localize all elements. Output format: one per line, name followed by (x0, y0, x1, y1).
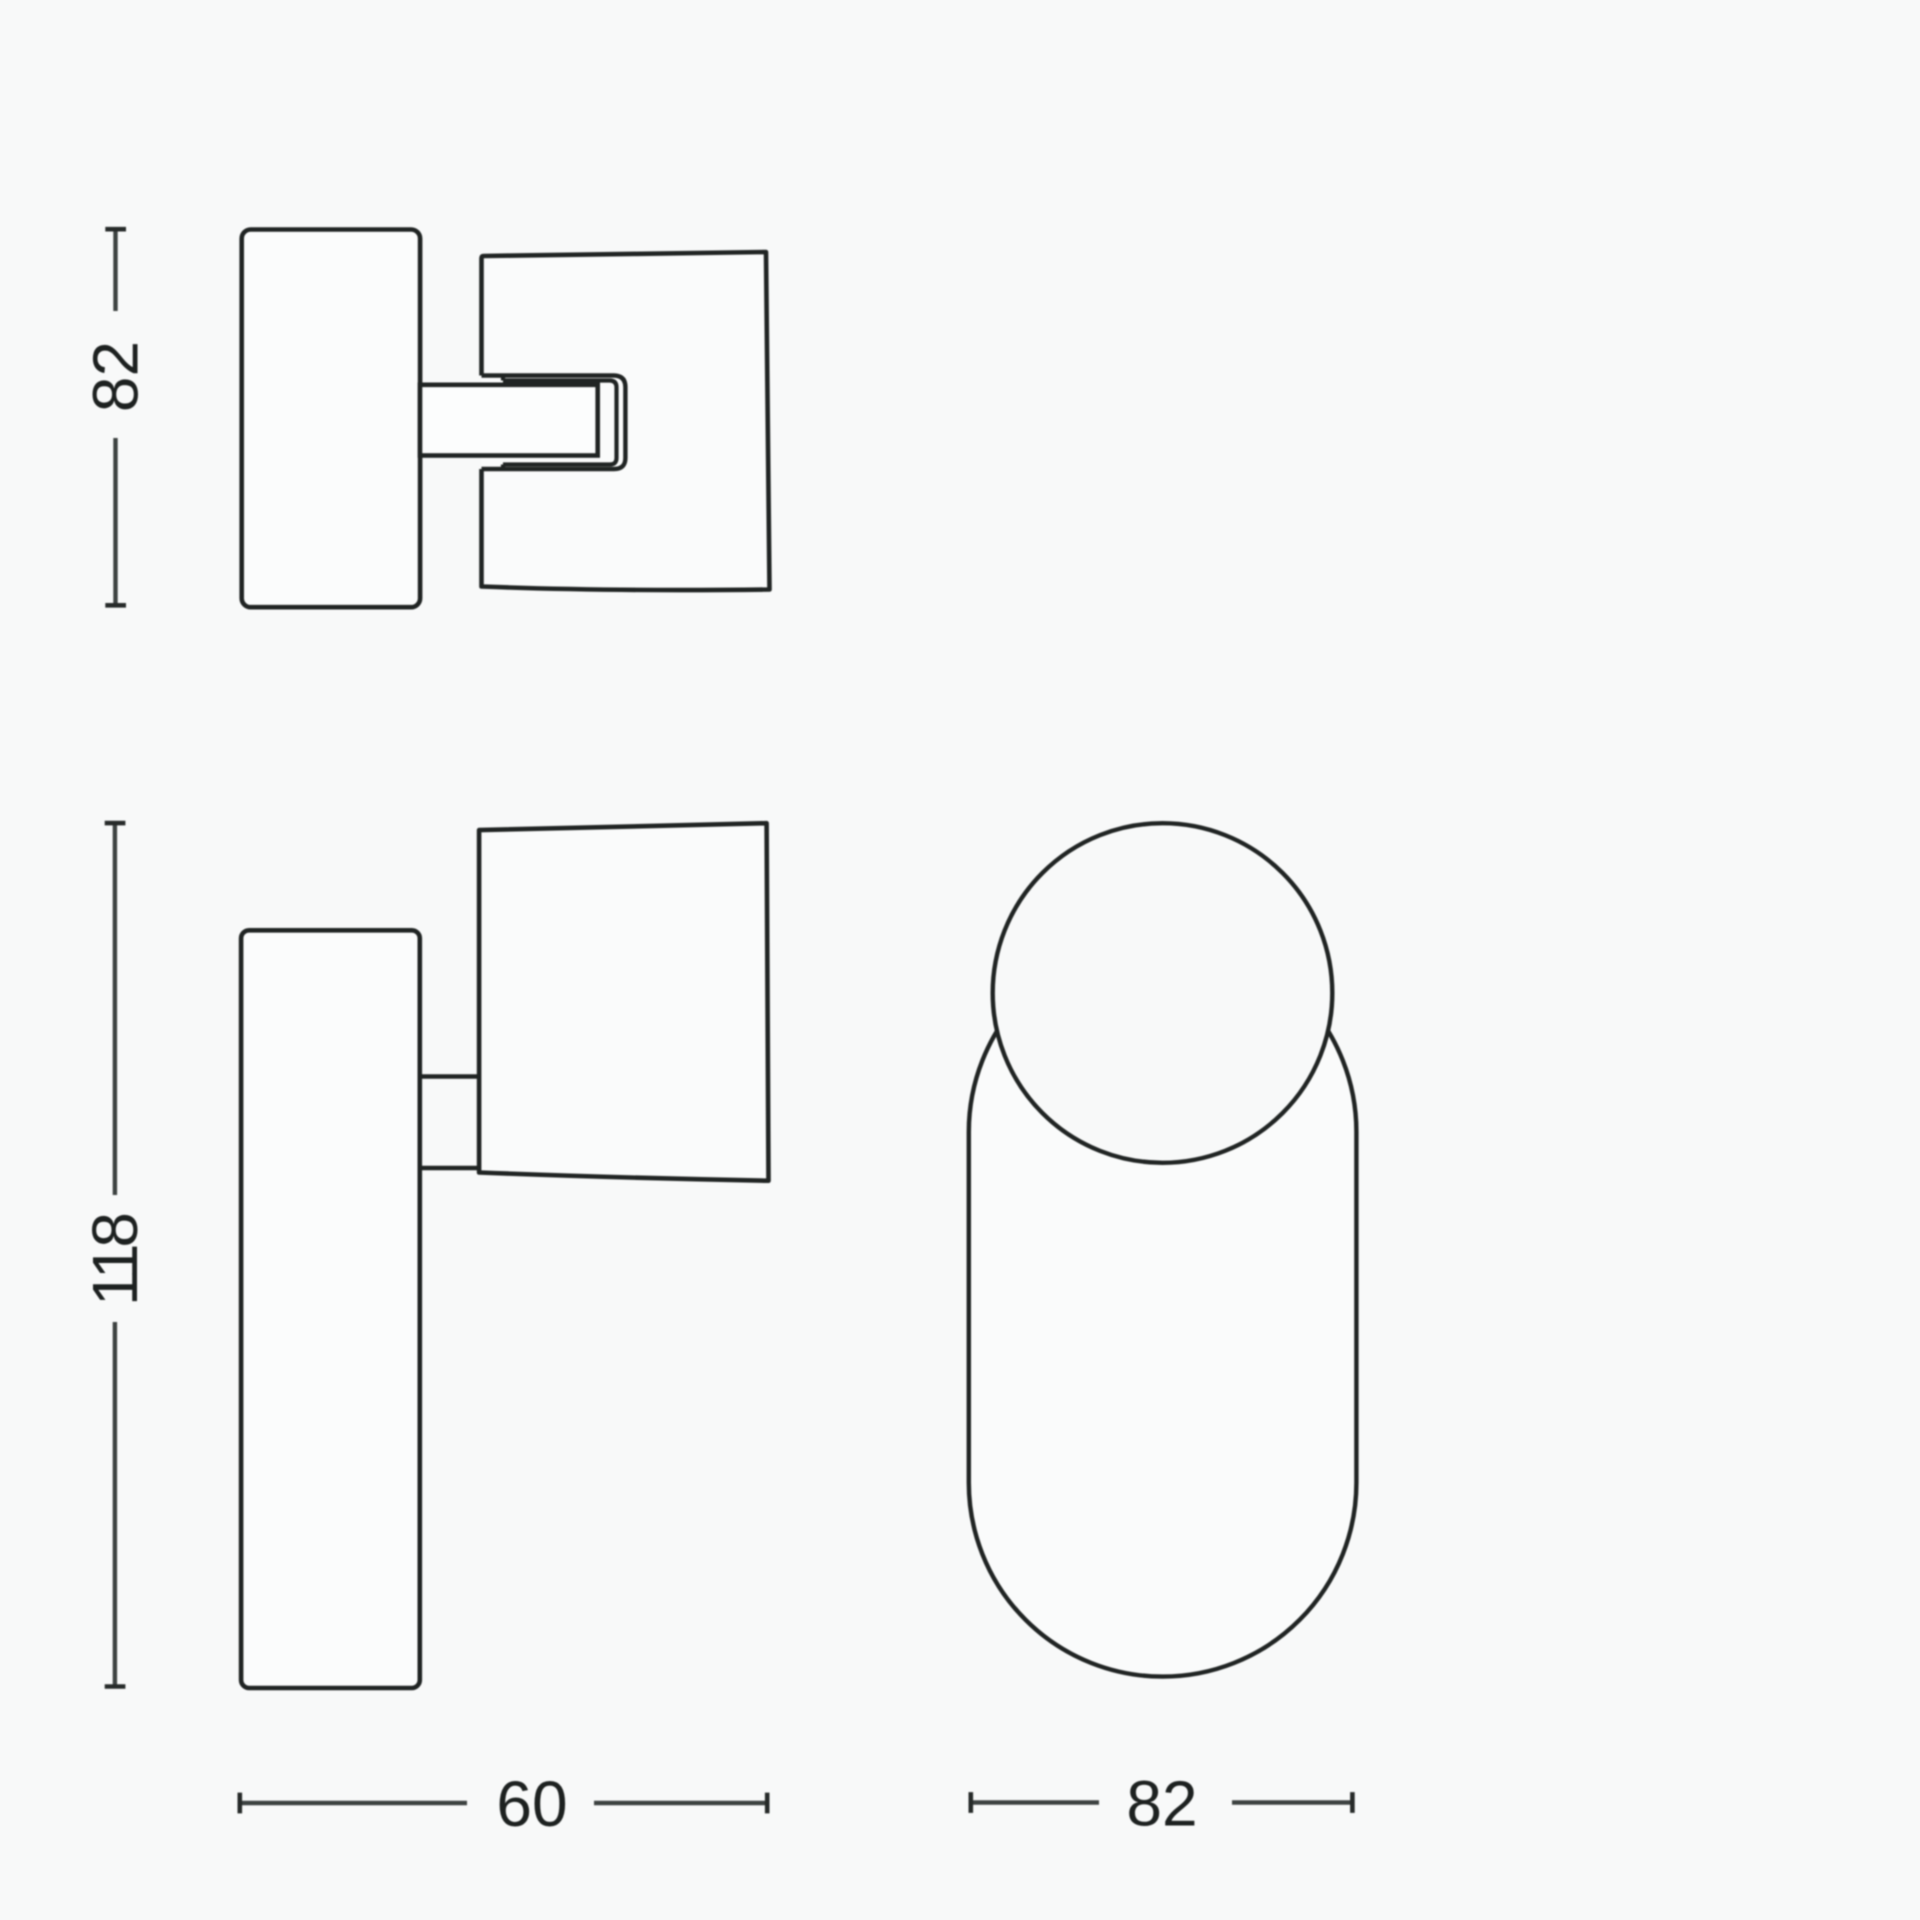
svg-text:118: 118 (79, 1215, 151, 1306)
svg-text:82: 82 (80, 341, 152, 412)
svg-text:60: 60 (496, 1768, 567, 1840)
svg-text:82: 82 (1126, 1768, 1197, 1840)
